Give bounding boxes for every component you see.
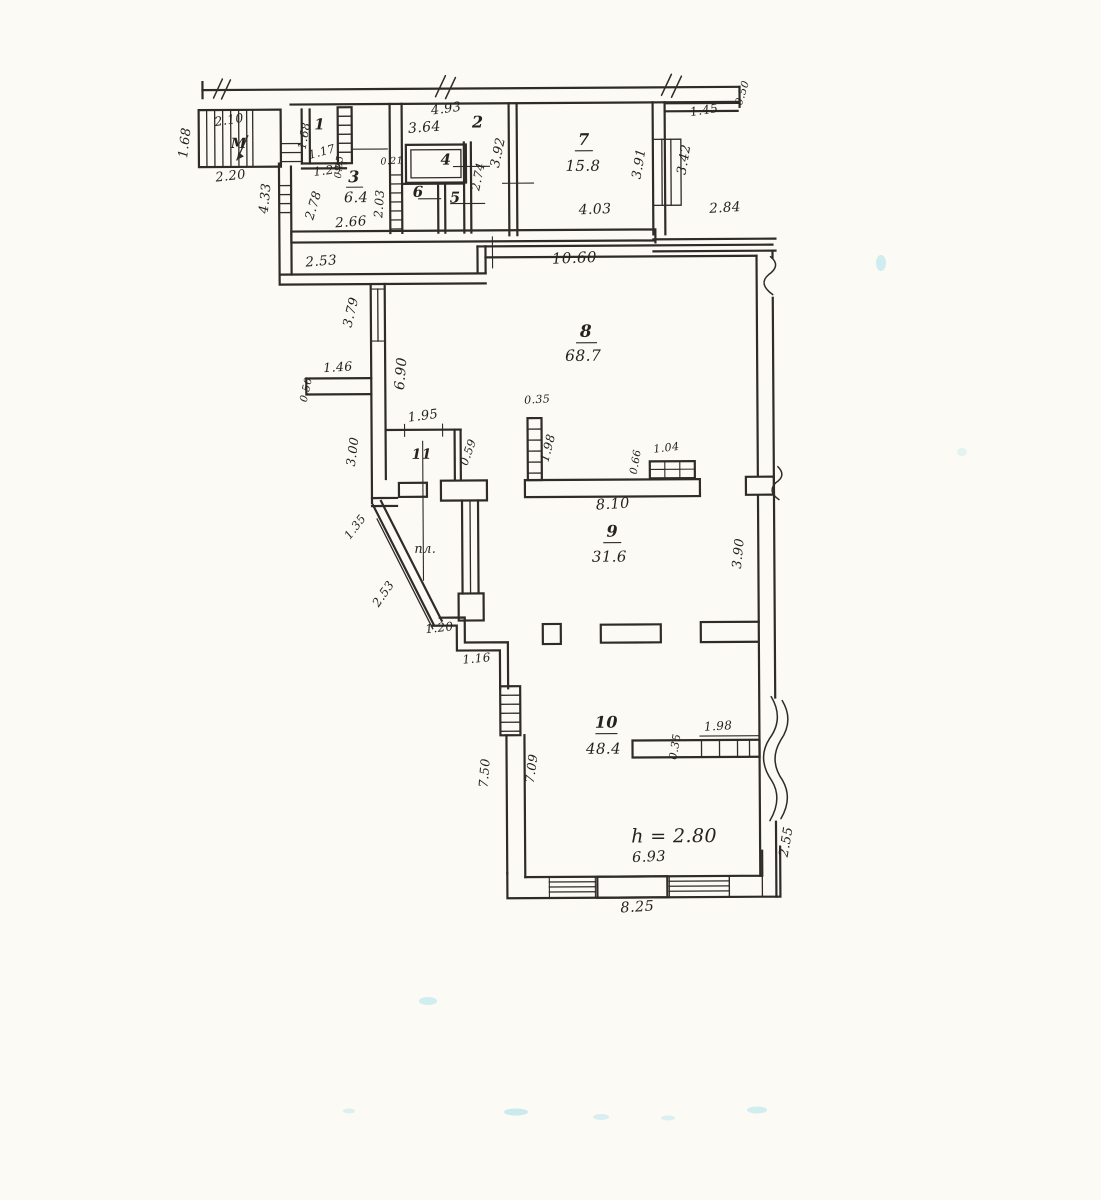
dim-room3-niche: 0.85 bbox=[333, 155, 346, 179]
dim-room8-top: 10.60 bbox=[552, 248, 598, 268]
dim-diag-upper: 1.35 bbox=[341, 512, 369, 542]
room3-number: 3 bbox=[348, 167, 360, 186]
landing-label: пл. bbox=[414, 542, 436, 557]
diagonal-wall bbox=[372, 498, 442, 629]
room11-number: 11 bbox=[412, 447, 432, 463]
ceiling-height-note: h = 2.80 bbox=[631, 825, 717, 848]
room8-area: 68.7 bbox=[565, 347, 601, 365]
room4-number: 4 bbox=[440, 151, 451, 169]
staircase-label: М bbox=[230, 136, 247, 152]
room7-area: 15.8 bbox=[565, 157, 600, 175]
dim-room3-bottom: 2.66 bbox=[334, 213, 368, 231]
dim-table-width: 1.04 bbox=[653, 440, 680, 456]
dim-room8-shoulder: 2.53 bbox=[304, 252, 338, 270]
dim-step-width: 1.20 bbox=[425, 619, 455, 636]
room9-area: 31.6 bbox=[592, 548, 627, 566]
room10-area: 48.4 bbox=[585, 740, 621, 758]
dim-room2-height: 3.92 bbox=[488, 136, 509, 169]
dim-stairs-width: 2.20 bbox=[214, 167, 247, 185]
dim-room10-bottom-inner: 6.93 bbox=[632, 849, 667, 866]
dim-stairs-top: 2.10 bbox=[212, 110, 244, 129]
dim-bar-length: 8.10 bbox=[595, 496, 630, 514]
center-column bbox=[458, 500, 484, 620]
dim-room10-left-inner: 7.09 bbox=[522, 753, 541, 784]
room1-number: 1 bbox=[314, 115, 325, 133]
dim-top-right-stub: 0.50 bbox=[733, 79, 752, 106]
dim-diag-lower: 2.53 bbox=[369, 578, 397, 610]
room8-number: 8 bbox=[579, 322, 592, 342]
dim-room2-top: 4.93 bbox=[429, 100, 462, 119]
staircase-block bbox=[199, 110, 292, 276]
dim-bar-column-width: 0.35 bbox=[524, 392, 551, 407]
dim-shaft-width: 0.21 bbox=[380, 155, 403, 167]
dim-room3-right: 2.03 bbox=[371, 189, 387, 219]
dim-room11-top: 1.95 bbox=[407, 407, 439, 426]
dim-table-depth: 0.66 bbox=[628, 449, 644, 476]
room3-area: 6.4 bbox=[344, 190, 368, 206]
dim-wall-right-top: 3.42 bbox=[675, 143, 695, 176]
room2-number: 2 bbox=[471, 112, 484, 131]
scanned-floor-plan-page: 1 2 3 6.4 4 5 6 7 15.8 8 68.7 9 31.6 10 … bbox=[0, 0, 1101, 1200]
dim-room2-width: 3.64 bbox=[407, 119, 441, 137]
dim-room1-inner: 1.17 bbox=[307, 141, 337, 162]
dim-room8-left: 6.90 bbox=[392, 357, 411, 391]
room2-room7-divider bbox=[509, 103, 518, 235]
dim-room7-right: 3.91 bbox=[630, 148, 650, 181]
room5-number: 5 bbox=[450, 189, 461, 207]
dim-right-offset: 2.84 bbox=[708, 199, 742, 217]
room10-left-wall bbox=[506, 735, 525, 877]
right-outer-wall bbox=[698, 251, 788, 898]
dim-right-wall-mid: 3.90 bbox=[730, 538, 748, 570]
dim-shelf-width: 1.98 bbox=[704, 718, 733, 734]
room9-number: 9 bbox=[606, 522, 618, 541]
room10-number: 10 bbox=[595, 713, 618, 732]
dim-room10-left-outer: 7.50 bbox=[476, 758, 493, 789]
top-wall bbox=[202, 74, 739, 114]
dim-room3-left: 2.78 bbox=[301, 189, 324, 222]
dim-right-wall-bottom: 2.55 bbox=[777, 826, 797, 860]
dim-room7-bottom: 4.03 bbox=[577, 201, 611, 218]
scan-artifacts bbox=[343, 255, 967, 1121]
dim-left-wall-upper: 4.33 bbox=[257, 182, 275, 215]
dim-room8-window-left: 3.79 bbox=[341, 296, 363, 329]
dim-stairs-depth: 1.68 bbox=[176, 127, 194, 159]
dim-top-right-step: 1.45 bbox=[689, 101, 719, 119]
dim-room10-bottom-outer: 8.25 bbox=[620, 899, 655, 917]
room7-number: 7 bbox=[578, 130, 590, 149]
room10-shelf bbox=[632, 736, 759, 758]
floor-plan-drawing: 1 2 3 6.4 4 5 6 7 15.8 8 68.7 9 31.6 10 … bbox=[0, 0, 1101, 1200]
dim-step-lower: 1.16 bbox=[462, 650, 492, 667]
walls bbox=[198, 74, 789, 901]
dim-niche-width: 1.46 bbox=[323, 358, 353, 375]
step-wall bbox=[432, 617, 521, 736]
room9-room10-divider bbox=[543, 623, 661, 644]
room3-shaft bbox=[390, 104, 403, 233]
room6-number: 6 bbox=[413, 183, 424, 201]
dim-niche-depth: 0.50 bbox=[298, 376, 315, 403]
dim-left-wall-lower: 3.00 bbox=[343, 436, 362, 467]
